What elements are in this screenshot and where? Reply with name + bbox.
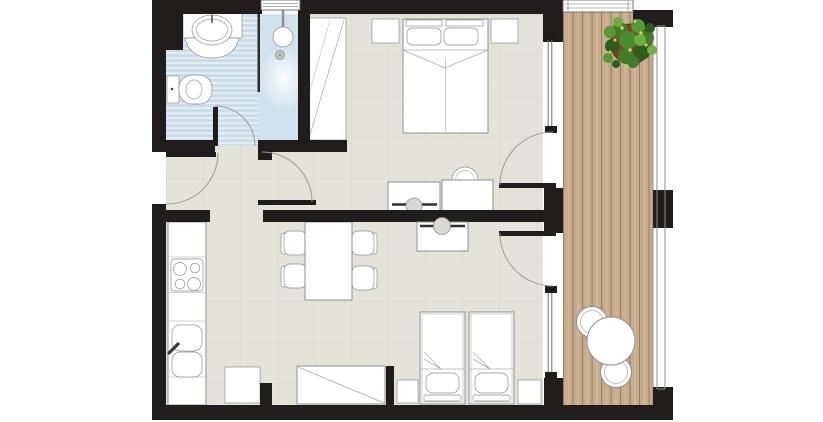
headboard-shelf-left: [406, 20, 442, 26]
top-wall-mid: [298, 0, 543, 14]
bottom-wall: [152, 405, 673, 420]
floor-drain-center: [278, 53, 282, 57]
middle-wall: [263, 210, 545, 222]
bathroom-niche-stub: [166, 0, 183, 50]
bedroom-door-leaf: [258, 200, 316, 205]
shower-head-icon: [273, 27, 293, 47]
kitchen-counter: [168, 222, 206, 405]
burner-3: [175, 279, 185, 289]
balcony-table: [587, 317, 635, 365]
dining-table: [305, 222, 352, 300]
twin-bed-2-pillow: [475, 373, 508, 393]
base-cabinet: [225, 367, 260, 403]
hallway-kitchen-stub: [166, 210, 210, 222]
pillow-right: [444, 28, 478, 45]
sink-bowl-2: [172, 352, 202, 377]
twin-bed-1-footer: [424, 395, 461, 401]
bathroom-south-wall-left: [152, 140, 215, 152]
floor-plan-canvas: [0, 0, 823, 422]
balcony-junction-block: [544, 188, 563, 233]
living-desk-stool: [434, 218, 451, 235]
headboard-shelf-right: [446, 20, 483, 26]
living-desk-group: [417, 218, 468, 252]
toilet-flush-button: [171, 88, 174, 91]
left-wall-upper: [152, 0, 166, 152]
twin-bed-2-footer: [473, 395, 510, 401]
burner-2: [190, 263, 200, 273]
bedroom-balcony-door-leaf: [499, 183, 556, 188]
kitchen-bottom-stub: [260, 383, 272, 405]
balcony-top-window: [563, 0, 633, 12]
dressing-table: [442, 180, 493, 212]
right-mid-block: [653, 190, 673, 228]
chair-seat-4: [352, 266, 374, 290]
bathroom-south-stub: [258, 152, 272, 160]
bath-shower-divider: [258, 11, 261, 92]
living-glass-cap-top: [545, 286, 557, 293]
bathroom-window: [261, 0, 300, 10]
bathroom-south-wall-right: [258, 140, 347, 152]
left-wall-lower: [152, 204, 166, 420]
living-balcony-door-leaf: [499, 231, 556, 236]
bedroom-glass-cap-top: [545, 33, 557, 40]
twin-nightstand-left: [397, 380, 418, 403]
floor-plan: [0, 0, 823, 422]
bathroom-door-leaf: [213, 107, 218, 146]
shower-bedroom-wall: [298, 14, 310, 150]
chair-seat-1: [284, 231, 306, 255]
twin-bed-1-pillow: [426, 373, 459, 393]
toilet-bowl: [179, 75, 212, 104]
burner-4: [188, 278, 201, 291]
nightstand-left: [372, 19, 399, 43]
burner-1: [174, 263, 187, 276]
living-glass-end-block: [544, 378, 563, 408]
living-glass-cap-bottom: [545, 372, 557, 379]
chair-seat-3: [352, 231, 374, 255]
twin-nightstand-right: [518, 380, 541, 404]
right-bottom-block: [653, 387, 673, 405]
nightstand-right: [491, 19, 518, 43]
wardrobe-side-stub: [386, 366, 394, 405]
chair-seat-2: [284, 264, 306, 288]
entrance-door-leaf: [166, 152, 216, 157]
pillow-left: [407, 28, 441, 45]
